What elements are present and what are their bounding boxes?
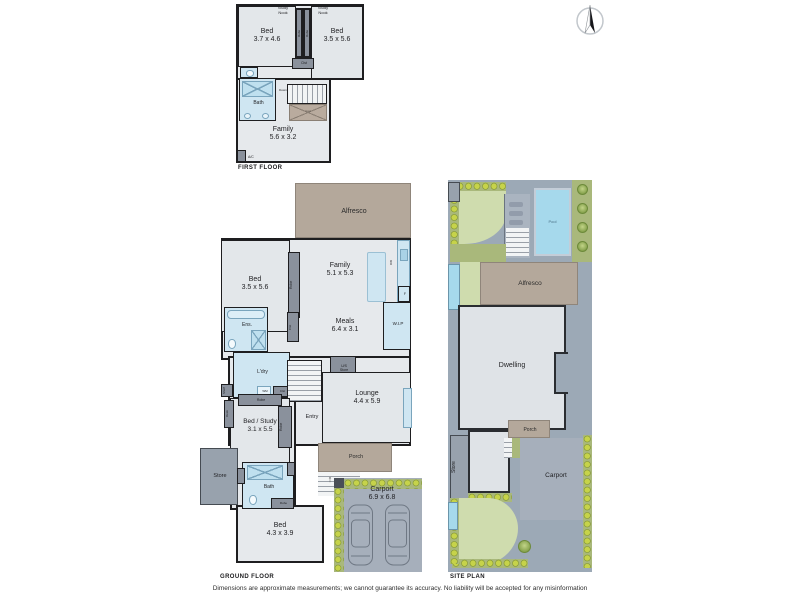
sp-porch: Porch bbox=[508, 420, 550, 438]
sp-garden-band bbox=[450, 244, 506, 262]
sp-pool-label: Pool bbox=[536, 220, 569, 225]
gf-bath-toilet bbox=[249, 495, 257, 505]
gf-bed1-label: Bed 3.5 x 5.6 bbox=[223, 276, 287, 293]
gf-alfresco: Alfresco bbox=[295, 183, 411, 238]
gf-meals-label: Meals 6.4 x 3.1 bbox=[310, 318, 380, 335]
sp-lawn-side bbox=[460, 262, 480, 305]
sp-deck-bar bbox=[509, 211, 523, 216]
gf-ens-tub bbox=[227, 310, 265, 319]
sp-water-tank2 bbox=[448, 502, 458, 530]
gf-shelf-label: Shelf bbox=[222, 385, 232, 396]
sp-shed bbox=[448, 182, 460, 202]
gf-lounge-room bbox=[322, 372, 411, 443]
gf-bath-label: Bath bbox=[243, 484, 295, 490]
ff-stairs-down-label: Down bbox=[277, 89, 289, 93]
floor-plan-sheet: Bed 3.7 x 4.6 Bed 3.5 x 5.6 Study Nook S… bbox=[0, 0, 800, 600]
ff-wc-room bbox=[240, 67, 258, 78]
site-plan: Pool Alfresco Dwelling Store Porch Carpo bbox=[448, 180, 592, 572]
gf-porch: Porch bbox=[318, 443, 392, 472]
gf-ens-toilet bbox=[228, 339, 236, 349]
sp-carport-label: Carport bbox=[520, 472, 592, 480]
sp-garden-right bbox=[572, 180, 592, 262]
gf-linen-left bbox=[237, 468, 245, 484]
gf-robe-v: Robe bbox=[278, 406, 292, 448]
ff-robe-right: Robe bbox=[304, 9, 310, 57]
ff-family-label: Family 5.6 x 3.2 bbox=[248, 126, 318, 143]
gf-window-seat bbox=[403, 388, 412, 428]
gf-laundry: L'dry WM Clst bbox=[233, 352, 290, 398]
sp-deck-bar bbox=[509, 202, 523, 207]
gf-fridge: F bbox=[398, 286, 410, 302]
gf-ens-shower bbox=[251, 330, 266, 350]
ff-robes-block: Robe Robe bbox=[295, 8, 311, 58]
ff-bed-left-label: Bed 3.7 x 4.6 bbox=[240, 28, 294, 45]
ff-study-nook-right-label: Study Nook bbox=[310, 6, 336, 16]
gf-lounge-label: Lounge 4.4 x 5.9 bbox=[328, 390, 406, 407]
ff-void-label: Void bbox=[297, 110, 319, 114]
gf-clst-vert-label: Clst bbox=[288, 313, 298, 341]
tree-icon bbox=[577, 241, 588, 252]
sp-lawn-bottom bbox=[452, 498, 518, 564]
ff-bed-right-label: Bed 3.5 x 5.6 bbox=[313, 28, 361, 45]
gf-carport-label: Carport 6.9 x 6.8 bbox=[346, 486, 418, 503]
disclaimer-text: Dimensions are approximate measurements;… bbox=[0, 585, 800, 592]
sp-alfresco-label: Alfresco bbox=[481, 280, 579, 288]
gf-robe-h: Robe bbox=[238, 394, 282, 406]
sp-porch-label: Porch bbox=[509, 427, 551, 433]
gf-bath-shower bbox=[247, 465, 283, 480]
ff-closet-label: Clst bbox=[293, 61, 315, 65]
sp-dwelling-label: Dwelling bbox=[474, 362, 550, 370]
gf-bed2-label: Bed 4.3 x 3.9 bbox=[243, 522, 317, 539]
gf-dishwasher-label: DW bbox=[389, 255, 396, 271]
ground-floor-title: GROUND FLOOR bbox=[220, 574, 320, 581]
ff-ac-label: A/C bbox=[248, 155, 262, 159]
gf-entry-label: Entry bbox=[295, 414, 329, 421]
gf-ensuite: Ens. bbox=[224, 307, 268, 352]
ff-robe-right-label: Robe bbox=[305, 10, 309, 56]
gf-laundry-label: L'dry bbox=[234, 369, 291, 375]
gf-linen-right bbox=[287, 462, 295, 476]
gf-wip-pantry: W.I.P bbox=[383, 302, 411, 350]
gf-store-room: Store bbox=[200, 448, 238, 505]
gf-desk: Desk bbox=[224, 400, 234, 428]
sp-deck-steps bbox=[506, 228, 529, 256]
gf-store-label: Store bbox=[201, 473, 239, 480]
ff-bath-room: Bath bbox=[239, 78, 276, 121]
gf-bath-robe: Robe bbox=[271, 498, 294, 509]
sp-pool: Pool bbox=[534, 188, 571, 256]
gf-clst-vert: Clst bbox=[287, 312, 299, 342]
ff-study-nook-left-label: Study Nook bbox=[270, 6, 296, 16]
gf-robe-h-label: Robe bbox=[239, 398, 283, 402]
ff-wc-toilet bbox=[246, 70, 254, 77]
gf-bath-robe-label: Robe bbox=[272, 502, 295, 506]
tree-icon bbox=[577, 203, 588, 214]
sp-alfresco: Alfresco bbox=[480, 262, 578, 305]
sp-deck bbox=[504, 194, 530, 258]
sp-carport: Carport bbox=[520, 438, 592, 520]
north-compass-icon bbox=[570, 2, 610, 46]
ff-closet: Clst bbox=[292, 58, 314, 69]
ff-bath-sink bbox=[244, 113, 251, 119]
gf-robe1: Robe bbox=[288, 252, 300, 318]
site-plan-title: SITE PLAN bbox=[450, 574, 550, 581]
ff-bath-shower bbox=[242, 81, 273, 97]
gf-island-bench bbox=[367, 252, 386, 302]
sp-deck-bar bbox=[509, 220, 523, 225]
ff-ac-unit bbox=[237, 150, 246, 162]
ff-robe-left: Robe bbox=[296, 9, 302, 57]
ff-bath-label: Bath bbox=[240, 100, 277, 106]
gf-family-label: Family 5.1 x 5.3 bbox=[305, 262, 375, 279]
gf-shelf: Shelf bbox=[221, 384, 233, 397]
gf-stairs bbox=[287, 360, 322, 402]
sp-dwelling-notch bbox=[554, 352, 568, 394]
gf-carport-hedge-left bbox=[334, 479, 344, 572]
gf-robe1-label: Robe bbox=[289, 253, 299, 317]
gf-wip-label: W.I.P bbox=[384, 321, 412, 326]
car-icon bbox=[347, 503, 374, 567]
sp-hedge-bottom bbox=[452, 559, 528, 568]
gf-robe-v-label: Robe bbox=[279, 407, 291, 447]
sp-hedge-top bbox=[456, 182, 506, 191]
sp-porch-steps bbox=[504, 438, 512, 458]
gf-carport-post bbox=[334, 478, 344, 488]
tree-icon bbox=[577, 222, 588, 233]
sp-hedge-right bbox=[583, 435, 592, 568]
sp-dwelling: Dwelling bbox=[458, 305, 566, 430]
gf-porch-label: Porch bbox=[319, 454, 393, 461]
ff-bath-sink2 bbox=[262, 113, 269, 119]
gf-fridge-label: F bbox=[399, 292, 411, 296]
gf-kitchen-sink bbox=[400, 249, 408, 261]
sp-water-tank bbox=[448, 264, 460, 310]
ff-robe-left-label: Robe bbox=[297, 10, 301, 56]
ff-stairs bbox=[287, 84, 327, 104]
car-icon bbox=[384, 503, 411, 567]
tree-icon bbox=[518, 540, 531, 553]
tree-icon bbox=[577, 184, 588, 195]
gf-desk-label: Desk bbox=[225, 401, 233, 427]
gf-ens-label: Ens. bbox=[225, 322, 269, 328]
first-floor-title: FIRST FLOOR bbox=[238, 165, 318, 172]
gf-alfresco-label: Alfresco bbox=[296, 208, 412, 216]
